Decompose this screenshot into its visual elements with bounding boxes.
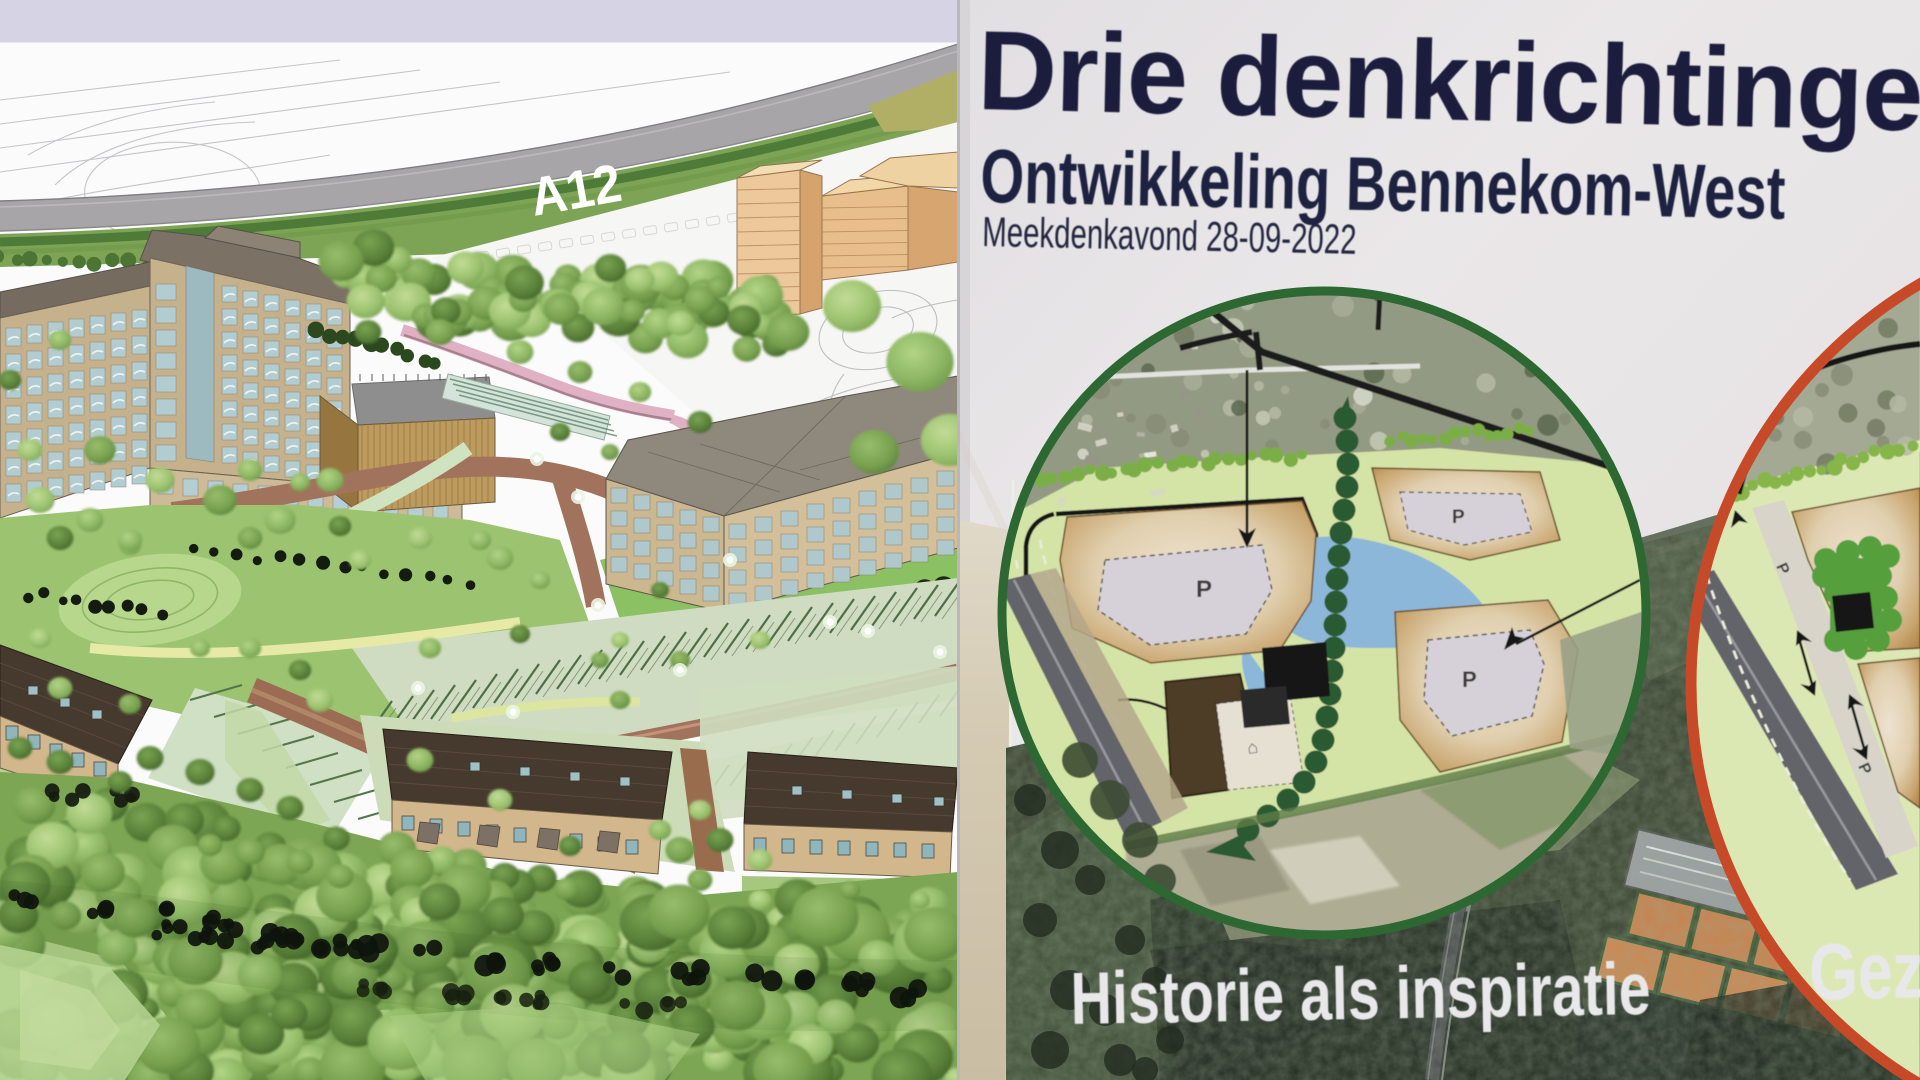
svg-text:P: P xyxy=(1452,507,1465,528)
svg-text:P: P xyxy=(1462,667,1477,692)
svg-text:Meekdenkavond 28-09-2022: Meekdenkavond 28-09-2022 xyxy=(982,208,1357,263)
svg-text:P: P xyxy=(1196,576,1212,603)
svg-text:Drie denkrichtinge: Drie denkrichtinge xyxy=(976,7,1920,155)
svg-text:Geze: Geze xyxy=(1808,925,1920,1018)
svg-text:Historie als inspiratie: Historie als inspiratie xyxy=(1070,948,1651,1041)
